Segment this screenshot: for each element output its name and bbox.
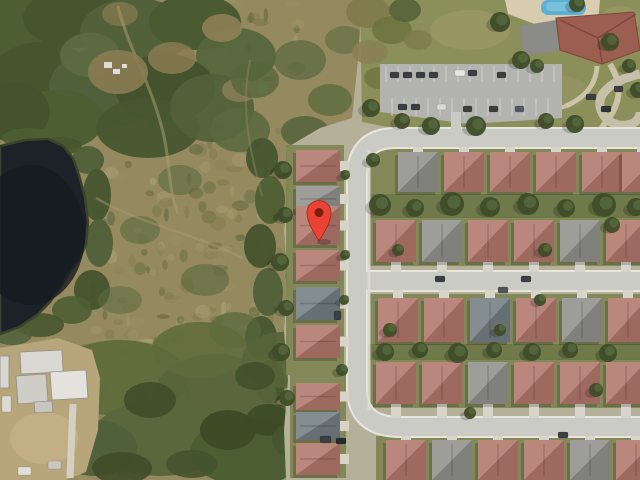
- house-roof: [383, 440, 426, 480]
- house-roof: [373, 220, 416, 265]
- satellite-image: [0, 0, 640, 480]
- house-roof: [293, 412, 340, 443]
- house-roof: [559, 298, 602, 345]
- house-roof: [441, 152, 484, 195]
- house-roof: [293, 443, 340, 478]
- house-roof: [511, 220, 554, 265]
- house-roof: [465, 220, 508, 265]
- house-roof: [419, 362, 462, 407]
- house-roof: [511, 362, 554, 407]
- forest-clearing: [88, 50, 148, 94]
- house-roof: [293, 250, 340, 284]
- house-roof: [293, 325, 340, 361]
- house-roof: [467, 298, 510, 345]
- house-roof: [293, 287, 340, 323]
- house-roof: [465, 362, 508, 407]
- house-roof: [533, 152, 576, 195]
- house-roof: [579, 152, 622, 195]
- house-roof: [429, 440, 472, 480]
- house-roof: [487, 152, 530, 195]
- house-roof: [373, 362, 416, 407]
- house-roof: [521, 440, 564, 480]
- house-roof: [421, 298, 464, 345]
- house-roof: [419, 220, 462, 265]
- house-roof: [395, 152, 438, 195]
- house-roof: [293, 150, 340, 185]
- house-roof: [613, 440, 640, 480]
- house-roof: [475, 440, 518, 480]
- house-roof: [605, 298, 640, 345]
- farm-buildings: [0, 338, 100, 480]
- house-roof: [567, 440, 610, 480]
- map-viewport[interactable]: [0, 0, 640, 480]
- house-roof: [557, 220, 600, 265]
- house-roof: [375, 298, 418, 345]
- house-roof: [293, 383, 340, 413]
- house-roof: [619, 152, 640, 195]
- house-roof: [603, 362, 640, 407]
